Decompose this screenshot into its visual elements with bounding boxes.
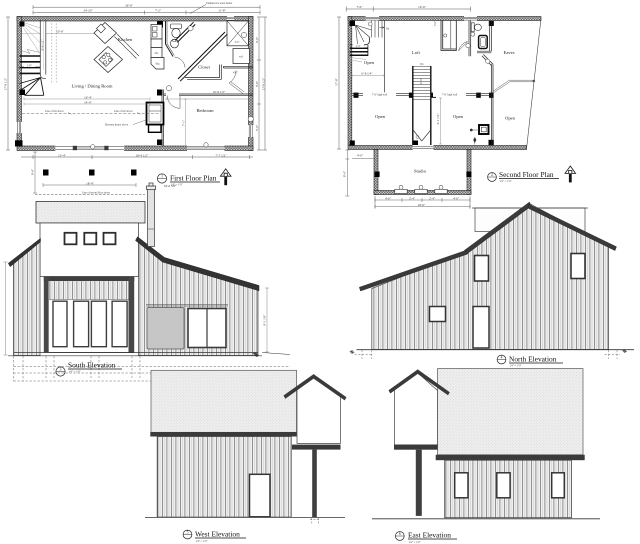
svg-text:5'-0": 5'-0"	[255, 124, 259, 131]
svg-text:4: 4	[501, 356, 503, 360]
svg-text:36'-6": 36'-6"	[125, 4, 133, 8]
svg-text:9'-8 1/2": 9'-8 1/2"	[40, 39, 44, 51]
svg-text:8'-0": 8'-0"	[31, 168, 35, 175]
svg-text:14'-0": 14'-0"	[84, 100, 92, 104]
svg-text:2'-6": 2'-6"	[419, 77, 423, 84]
svg-text:2'-0": 2'-0"	[27, 64, 32, 67]
svg-text:Studio: Studio	[414, 169, 427, 174]
svg-text:18'-0": 18'-0"	[418, 203, 426, 207]
svg-text:2'-4": 2'-4"	[429, 196, 436, 200]
svg-text:2: 2	[491, 173, 493, 177]
svg-text:Second Floor Plan: Second Floor Plan	[499, 170, 554, 179]
svg-text:5: 5	[187, 531, 189, 535]
svg-text:Line of loft above: Line of loft above	[45, 110, 65, 113]
svg-text:2'-2": 2'-2"	[356, 45, 361, 48]
svg-text:Eaves: Eaves	[504, 50, 515, 55]
svg-text:8'-1 1/8": 8'-1 1/8"	[263, 314, 267, 326]
svg-text:Kitchen: Kitchen	[118, 37, 133, 42]
svg-text:6'-8": 6'-8"	[255, 80, 259, 87]
svg-text:7'-2": 7'-2"	[155, 9, 162, 13]
svg-text:6'-8 1/4": 6'-8 1/4"	[362, 72, 374, 76]
svg-text:4'-6": 4'-6"	[385, 196, 392, 200]
svg-text:18'-4 1/2": 18'-4 1/2"	[136, 153, 149, 157]
svg-text:1/4" = 1'-0": 1/4" = 1'-0"	[500, 180, 512, 183]
svg-text:4'-0": 4'-0"	[233, 72, 238, 75]
svg-text:1/4" = 1'-0": 1/4" = 1'-0"	[510, 365, 522, 368]
svg-text:1/4" = 1'-0": 1/4" = 1'-0"	[69, 371, 81, 374]
svg-text:Bedroom: Bedroom	[196, 108, 214, 113]
svg-text:Closet: Closet	[198, 65, 210, 70]
svg-text:Living / Dining Room: Living / Dining Room	[72, 84, 113, 89]
svg-text:Line of loft above: Line of loft above	[114, 110, 134, 113]
svg-text:6'-0": 6'-0"	[255, 36, 259, 43]
svg-text:Dw: Dw	[155, 52, 159, 55]
svg-text:4'-6": 4'-6"	[453, 196, 460, 200]
svg-text:Open: Open	[453, 114, 464, 119]
svg-text:First Floor Plan: First Floor Plan	[170, 174, 217, 183]
svg-text:18'-4": 18'-4"	[86, 181, 94, 185]
svg-text:6: 6	[399, 532, 401, 536]
svg-text:Open: Open	[364, 60, 375, 65]
svg-text:17'-8": 17'-8"	[335, 77, 339, 85]
svg-text:4'-0": 4'-0"	[357, 154, 364, 158]
svg-text:11'-8": 11'-8"	[218, 9, 226, 13]
svg-text:7'-7 1/2": 7'-7 1/2"	[216, 153, 228, 157]
svg-text:South Elevation: South Elevation	[68, 361, 116, 370]
svg-text:34'-6 5/8": 34'-6 5/8"	[164, 184, 177, 188]
svg-text:Open: Open	[505, 116, 516, 121]
svg-text:16'-9 1/2": 16'-9 1/2"	[213, 90, 226, 94]
svg-text:17'-8 1/2": 17'-8 1/2"	[262, 77, 266, 90]
svg-text:Loft: Loft	[412, 50, 421, 55]
svg-text:West Elevation: West Elevation	[195, 530, 240, 539]
svg-text:7'-6": 7'-6"	[356, 5, 363, 9]
svg-text:North Elevation: North Elevation	[509, 355, 557, 364]
svg-text:Open: Open	[375, 114, 386, 119]
svg-text:3'-0": 3'-0"	[235, 41, 240, 44]
svg-text:10'-6": 10'-6"	[56, 30, 64, 34]
svg-text:Line of second floor above: Line of second floor above	[82, 191, 111, 194]
svg-text:Tankless hot water heater: Tankless hot water heater	[206, 2, 233, 5]
svg-text:2'-4": 2'-4"	[409, 196, 416, 200]
svg-text:7'-6" high wall: 7'-6" high wall	[442, 94, 458, 97]
svg-text:1: 1	[161, 175, 163, 179]
svg-text:3'-0": 3'-0"	[434, 21, 437, 26]
svg-text:Masonry heater above: Masonry heater above	[105, 124, 129, 127]
svg-text:24'-10": 24'-10"	[83, 9, 93, 13]
svg-text:17'-9 1/2": 17'-9 1/2"	[4, 77, 8, 90]
svg-text:1/4" = 1'-0": 1/4" = 1'-0"	[409, 541, 421, 544]
svg-text:16'-4": 16'-4"	[84, 95, 92, 99]
svg-text:16'-6": 16'-6"	[418, 5, 426, 9]
svg-text:1/4" = 1'-0": 1/4" = 1'-0"	[196, 540, 208, 543]
svg-text:3: 3	[60, 368, 62, 372]
svg-text:13'-4": 13'-4"	[58, 153, 66, 157]
svg-text:7'-1": 7'-1"	[181, 119, 185, 126]
svg-text:East Elevation: East Elevation	[408, 531, 451, 540]
svg-text:8'-6": 8'-6"	[343, 170, 347, 177]
svg-text:4'-1 1/2": 4'-1 1/2"	[436, 113, 440, 125]
svg-text:7'-6" high wall: 7'-6" high wall	[372, 94, 388, 97]
